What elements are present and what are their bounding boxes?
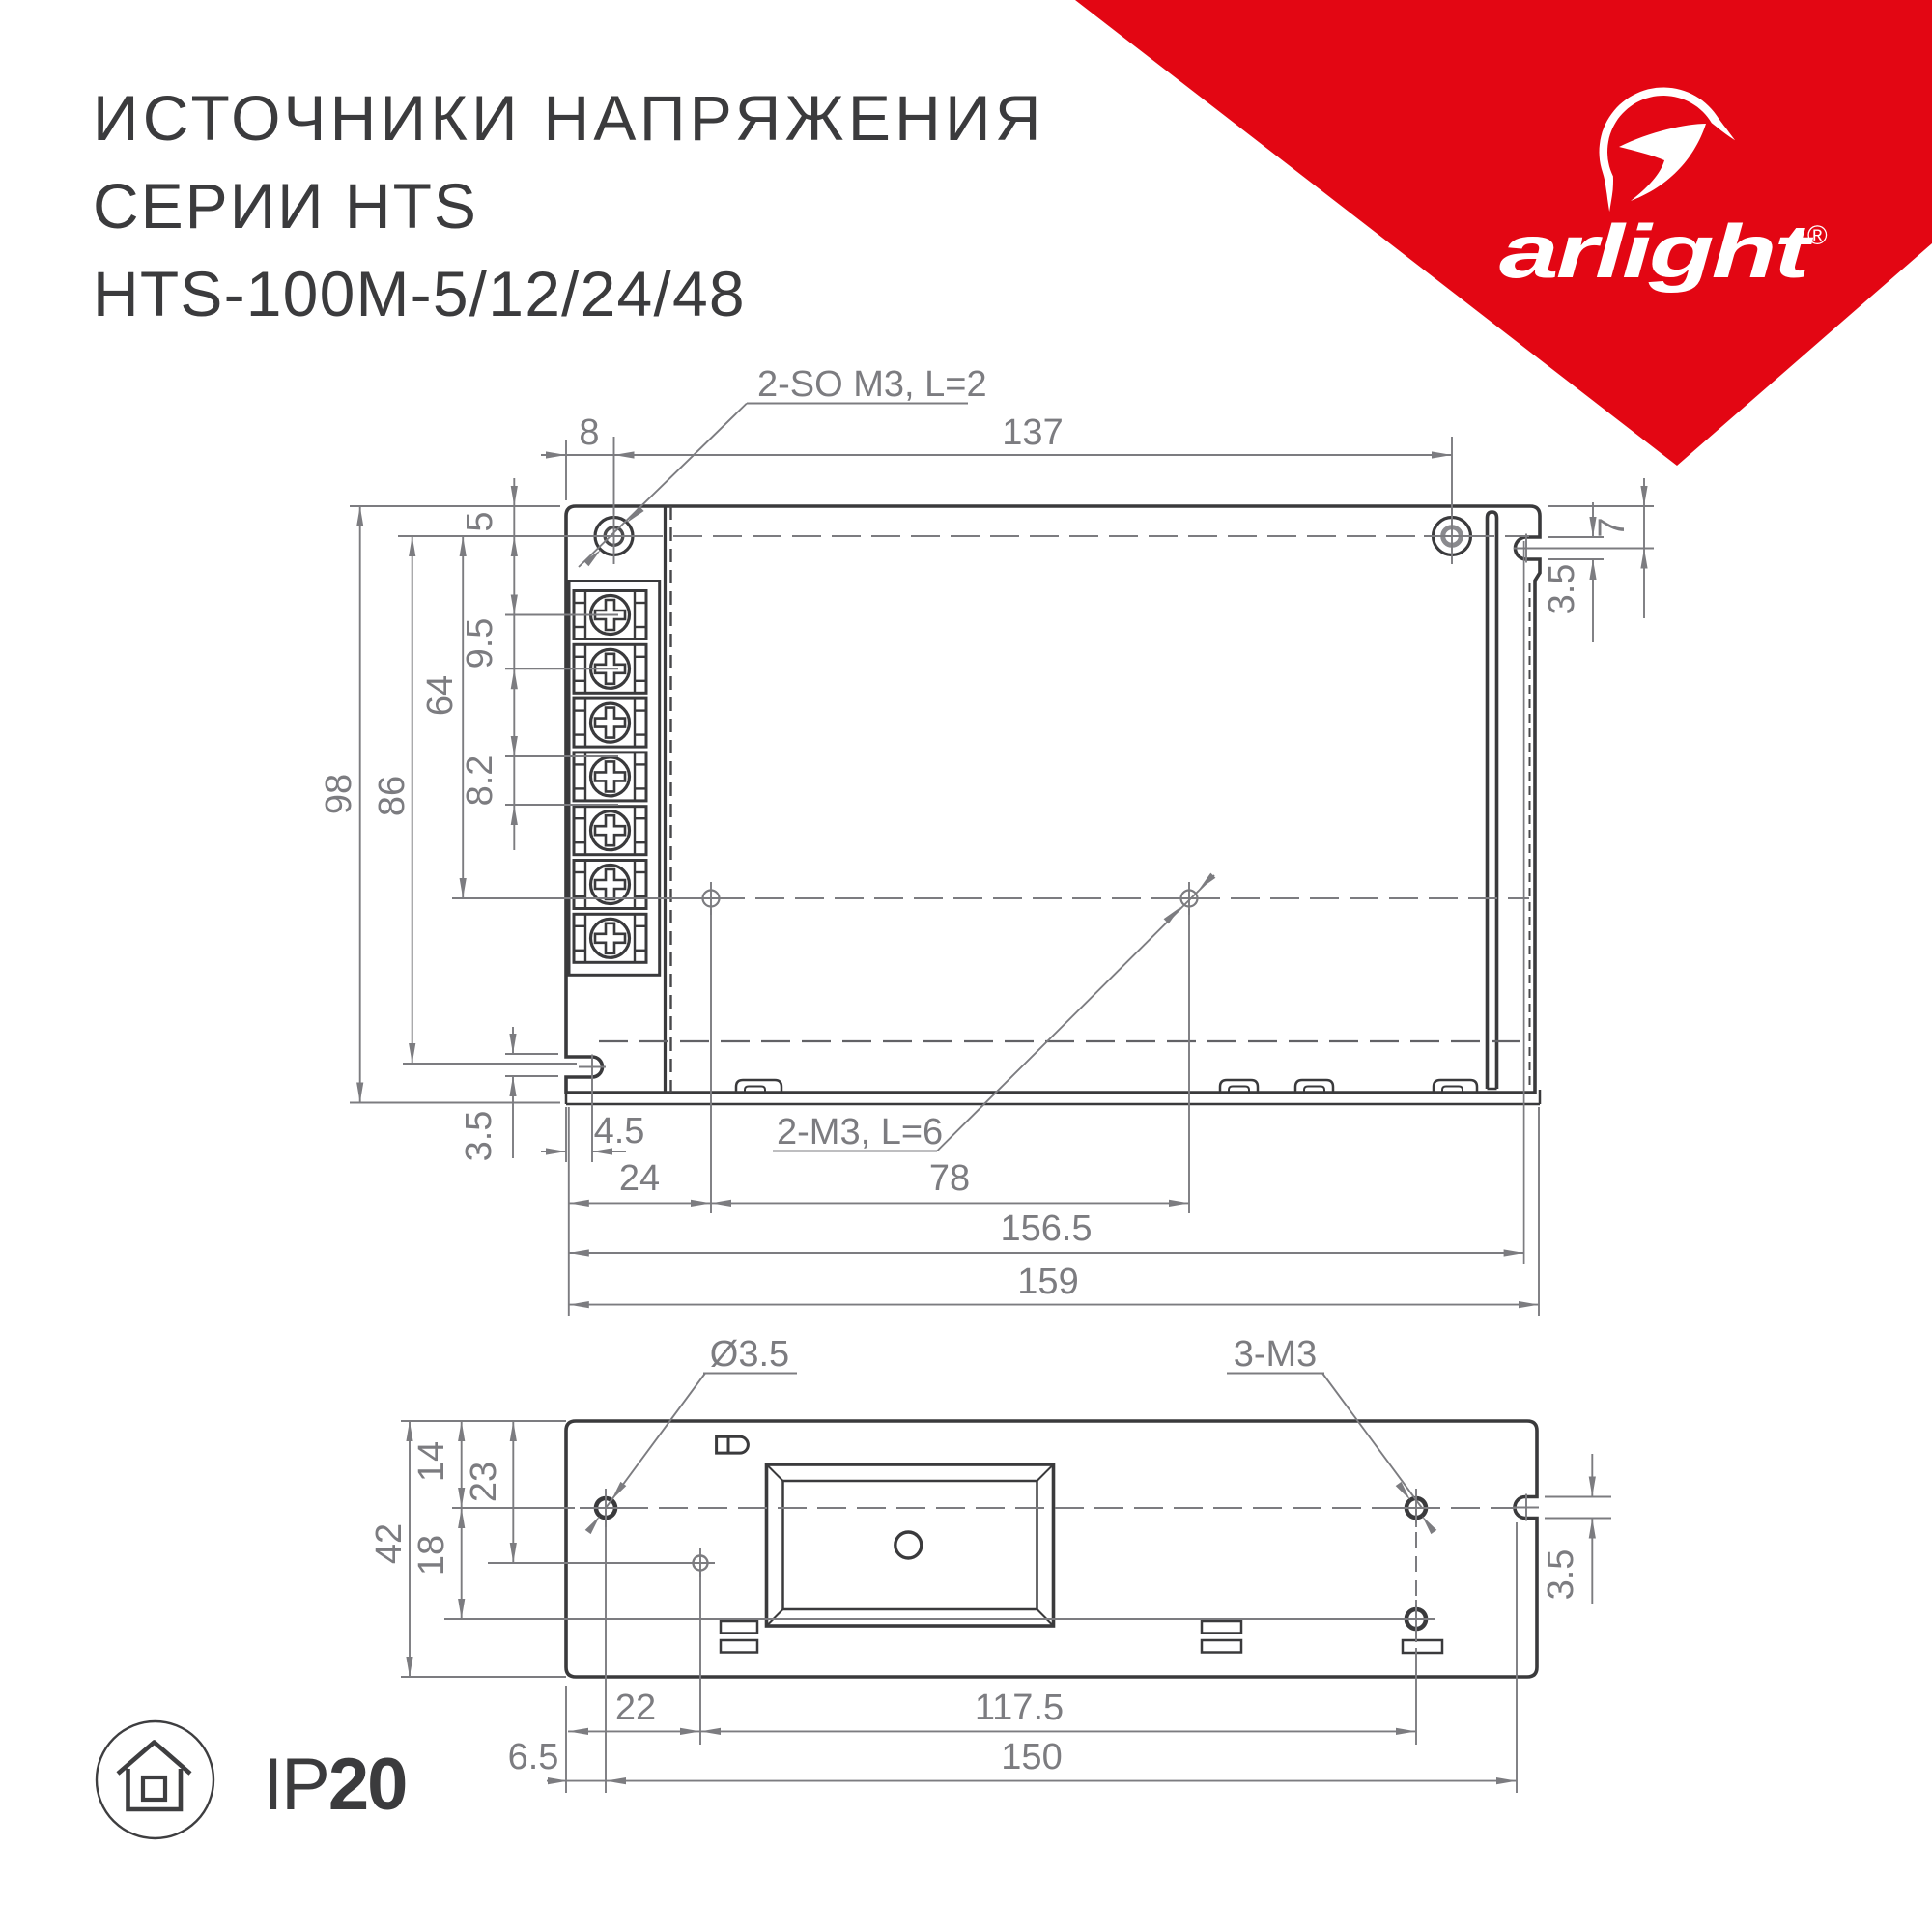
svg-text:159: 159 — [1017, 1262, 1078, 1302]
svg-text:42: 42 — [369, 1523, 410, 1564]
svg-text:Ø3.5: Ø3.5 — [710, 1334, 789, 1375]
svg-text:9.5: 9.5 — [460, 618, 500, 669]
svg-text:6.5: 6.5 — [508, 1737, 559, 1777]
svg-text:IP20: IP20 — [263, 1744, 406, 1826]
svg-text:8: 8 — [579, 412, 599, 453]
svg-text:arlight: arlight — [1499, 210, 1814, 294]
svg-text:HTS-100M-5/12/24/48: HTS-100M-5/12/24/48 — [93, 258, 746, 329]
svg-text:23: 23 — [464, 1462, 504, 1502]
svg-text:ИСТОЧНИКИ НАПРЯЖЕНИЯ: ИСТОЧНИКИ НАПРЯЖЕНИЯ — [93, 82, 1045, 154]
svg-text:3.5: 3.5 — [1542, 564, 1582, 615]
svg-text:156.5: 156.5 — [1000, 1208, 1092, 1249]
svg-text:®: ® — [1807, 220, 1828, 250]
svg-text:2-M3, L=6: 2-M3, L=6 — [777, 1112, 943, 1152]
svg-text:86: 86 — [372, 776, 412, 816]
svg-text:5: 5 — [460, 511, 500, 531]
svg-text:18: 18 — [412, 1535, 452, 1576]
svg-text:7: 7 — [1592, 517, 1633, 537]
svg-text:3.5: 3.5 — [459, 1111, 499, 1162]
svg-text:24: 24 — [619, 1158, 660, 1199]
svg-text:22: 22 — [615, 1688, 656, 1728]
svg-text:78: 78 — [929, 1158, 970, 1199]
svg-text:3-M3: 3-M3 — [1234, 1334, 1318, 1375]
svg-text:117.5: 117.5 — [975, 1688, 1064, 1728]
svg-text:64: 64 — [420, 675, 461, 716]
svg-text:150: 150 — [1001, 1737, 1062, 1777]
svg-text:137: 137 — [1002, 412, 1063, 453]
svg-text:4.5: 4.5 — [594, 1111, 645, 1151]
svg-text:СЕРИИ HTS: СЕРИИ HTS — [93, 170, 478, 241]
svg-text:2-SO M3, L=2: 2-SO M3, L=2 — [757, 364, 987, 405]
svg-text:3.5: 3.5 — [1541, 1549, 1581, 1601]
svg-text:98: 98 — [319, 774, 359, 814]
svg-text:8.2: 8.2 — [460, 755, 500, 807]
svg-text:14: 14 — [412, 1441, 452, 1482]
